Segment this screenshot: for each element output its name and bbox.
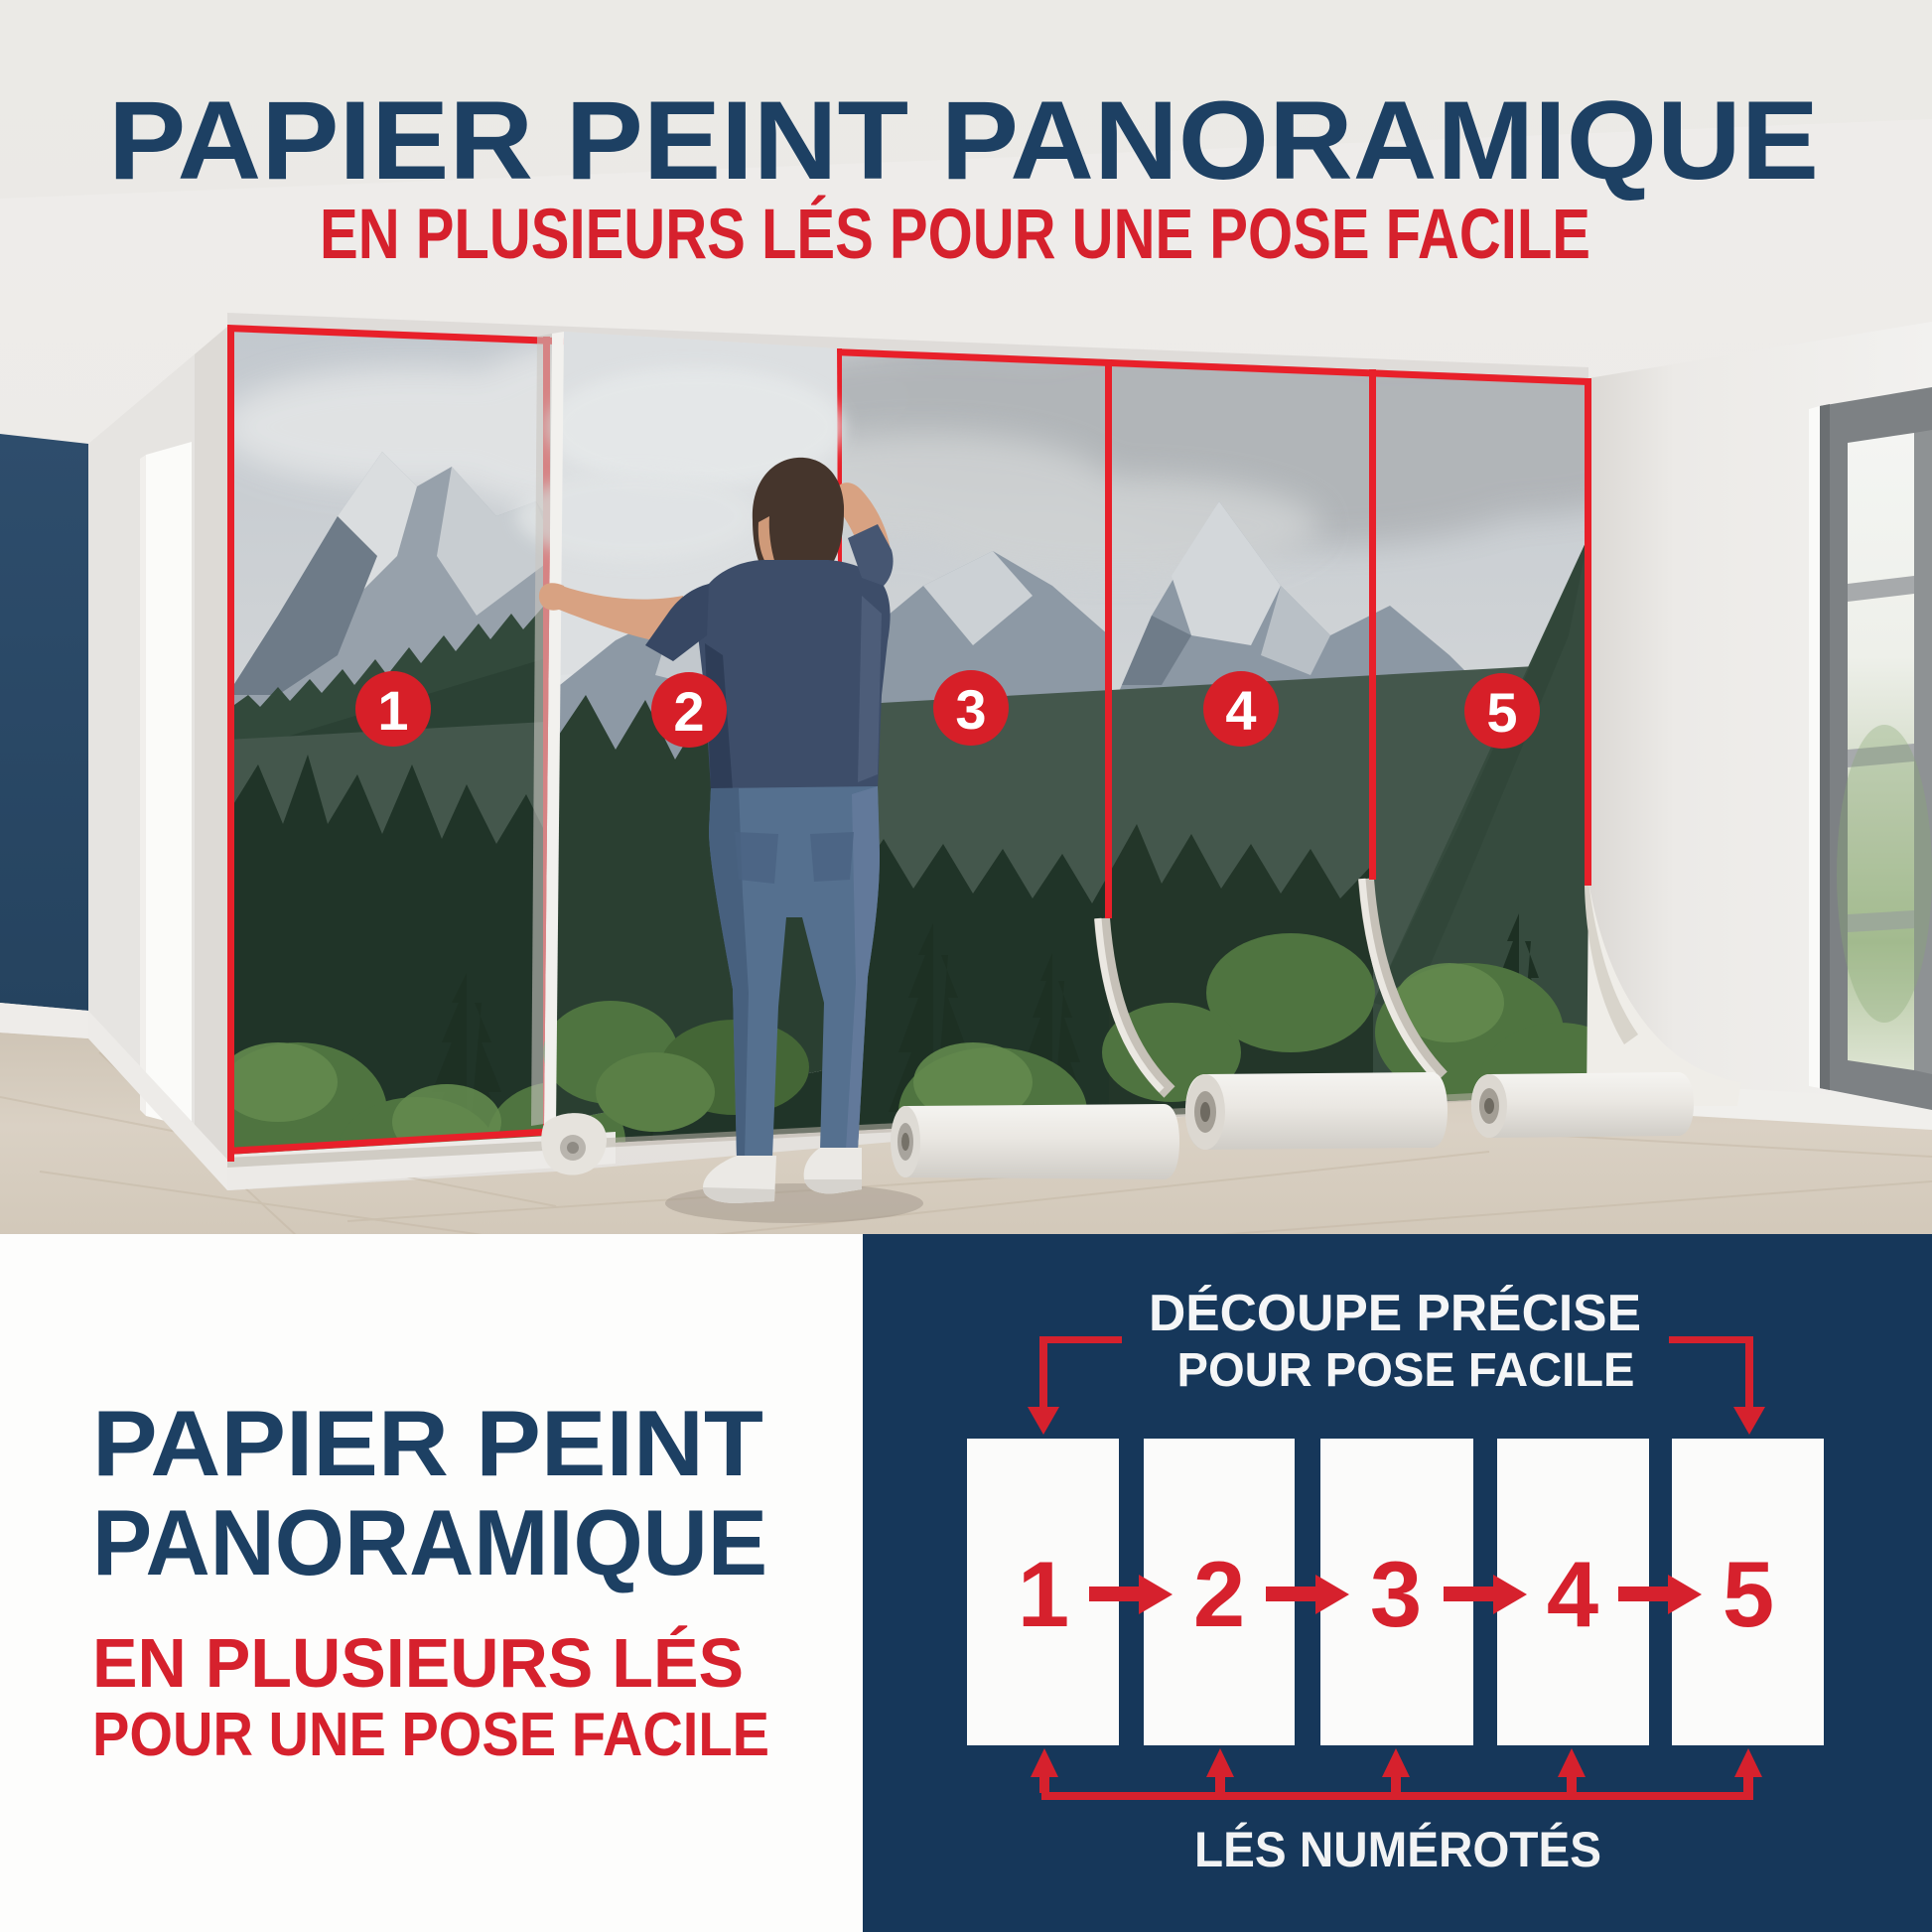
svg-text:4: 4 bbox=[1547, 1542, 1598, 1646]
svg-text:LÉS NUMÉROTÉS: LÉS NUMÉROTÉS bbox=[1194, 1822, 1601, 1877]
svg-text:4: 4 bbox=[1225, 679, 1256, 742]
svg-text:EN PLUSIEURS LÉS POUR UNE POSE: EN PLUSIEURS LÉS POUR UNE POSE FACILE bbox=[320, 196, 1590, 274]
svg-text:POUR UNE POSE FACILE: POUR UNE POSE FACILE bbox=[92, 1701, 769, 1769]
svg-text:PAPIER PEINT: PAPIER PEINT bbox=[92, 1391, 763, 1495]
svg-text:1: 1 bbox=[377, 679, 408, 742]
svg-text:5: 5 bbox=[1723, 1542, 1774, 1646]
svg-text:5: 5 bbox=[1486, 681, 1517, 744]
svg-text:POUR POSE FACILE: POUR POSE FACILE bbox=[1177, 1344, 1635, 1397]
svg-text:2: 2 bbox=[673, 680, 704, 743]
svg-text:PANORAMIQUE: PANORAMIQUE bbox=[92, 1490, 767, 1594]
svg-text:2: 2 bbox=[1193, 1542, 1245, 1646]
svg-text:DÉCOUPE PRÉCISE: DÉCOUPE PRÉCISE bbox=[1149, 1285, 1641, 1342]
svg-text:3: 3 bbox=[1370, 1542, 1422, 1646]
svg-text:3: 3 bbox=[955, 678, 986, 741]
svg-text:EN PLUSIEURS LÉS: EN PLUSIEURS LÉS bbox=[92, 1624, 744, 1702]
svg-text:PAPIER PEINT PANORAMIQUE: PAPIER PEINT PANORAMIQUE bbox=[108, 78, 1819, 203]
svg-text:1: 1 bbox=[1018, 1542, 1069, 1646]
